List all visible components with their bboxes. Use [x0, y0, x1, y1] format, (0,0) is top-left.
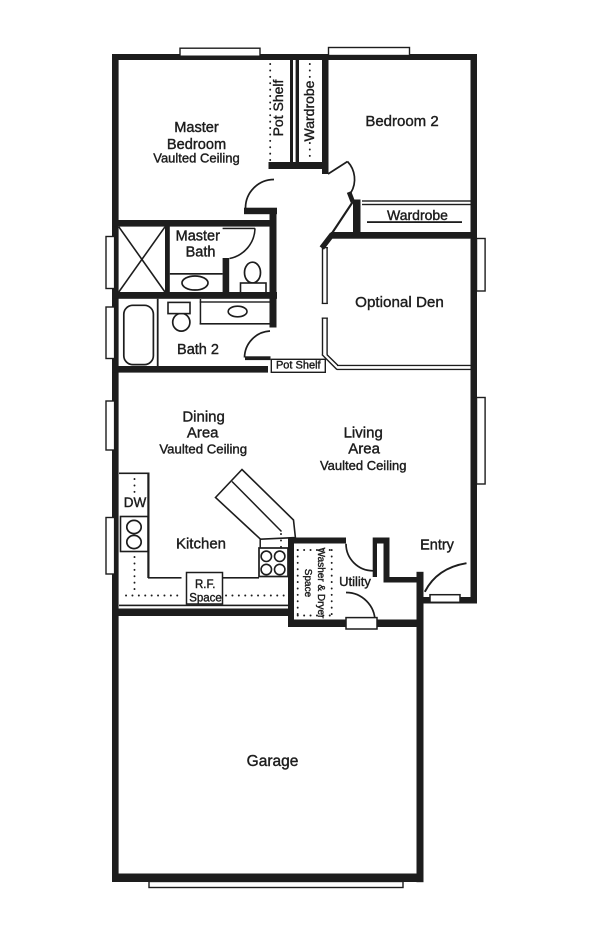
svg-text:DW: DW — [124, 495, 147, 510]
svg-text:Kitchen: Kitchen — [176, 536, 226, 553]
svg-text:Dining: Dining — [182, 409, 225, 426]
svg-text:Area: Area — [187, 425, 219, 442]
svg-text:Wardrobe: Wardrobe — [387, 207, 448, 223]
svg-text:R.F.: R.F. — [195, 579, 215, 591]
svg-text:Space: Space — [302, 569, 313, 598]
svg-text:Washer & Dryer: Washer & Dryer — [315, 548, 326, 619]
svg-text:Bath 2: Bath 2 — [177, 342, 219, 358]
svg-text:Wardrobe: Wardrobe — [301, 80, 317, 141]
svg-text:Bath: Bath — [186, 245, 216, 261]
svg-text:Vaulted Ceiling: Vaulted Ceiling — [153, 151, 239, 166]
svg-text:Garage: Garage — [247, 753, 299, 770]
svg-text:Space: Space — [189, 593, 222, 605]
svg-text:Master: Master — [174, 120, 219, 136]
svg-text:Optional Den: Optional Den — [355, 294, 444, 311]
svg-text:Master: Master — [176, 229, 220, 245]
svg-text:Vaulted Ceiling: Vaulted Ceiling — [320, 458, 406, 473]
svg-text:Living: Living — [344, 425, 383, 442]
svg-text:Bedroom 2: Bedroom 2 — [365, 113, 438, 130]
svg-text:Entry: Entry — [420, 538, 455, 554]
svg-text:Utility: Utility — [339, 574, 371, 589]
svg-text:Pot Shelf: Pot Shelf — [270, 79, 286, 136]
svg-text:Area: Area — [348, 441, 380, 458]
svg-text:Vaulted Ceiling: Vaulted Ceiling — [159, 442, 247, 457]
svg-text:Pot Shelf: Pot Shelf — [276, 359, 322, 371]
